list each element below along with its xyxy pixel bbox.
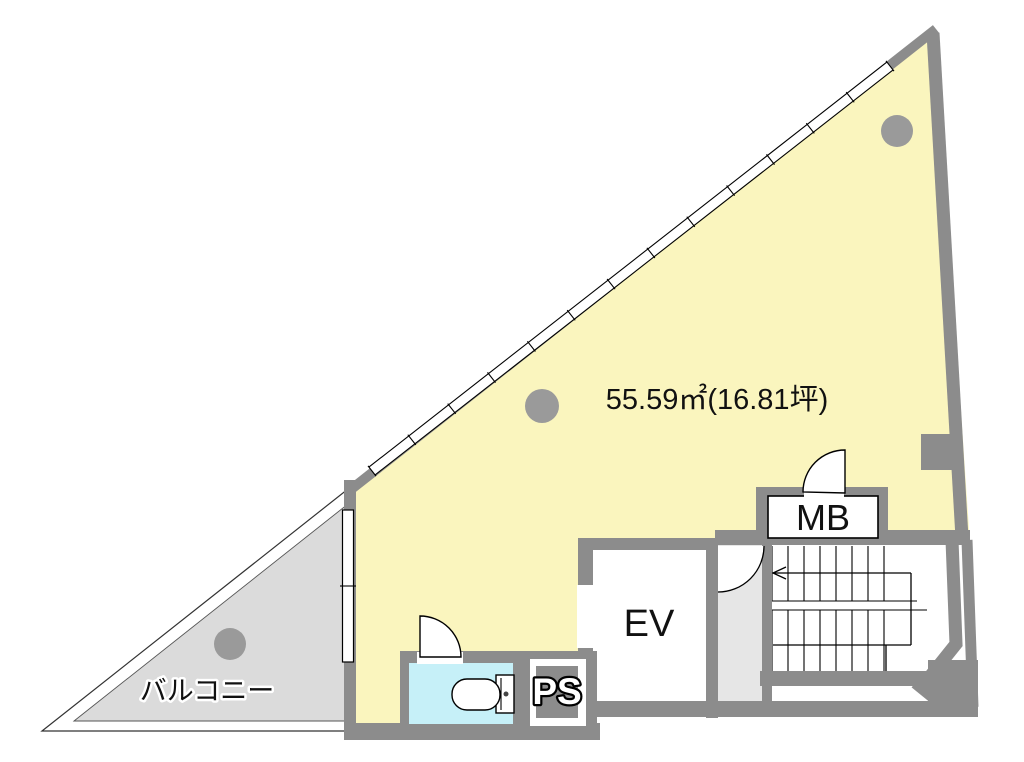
mailbox-label: MB xyxy=(796,497,850,538)
area-label: 55.59㎡(16.81坪) xyxy=(606,383,828,416)
balcony-label: バルコニー xyxy=(140,676,274,706)
elevator-label: EV xyxy=(624,603,675,645)
floor-plan: 55.59㎡(16.81坪) バルコニー EV MB PS xyxy=(0,0,1024,762)
ev-north-wall xyxy=(578,538,718,550)
east-wall-pilaster xyxy=(921,434,957,470)
column xyxy=(881,115,913,147)
toilet-room xyxy=(409,663,514,724)
stairwell-floor xyxy=(762,530,958,681)
balcony-window xyxy=(340,510,356,662)
stair-lower-landing xyxy=(772,686,934,702)
toilet-fixture-icon xyxy=(452,675,514,713)
corner-block xyxy=(928,660,978,714)
elevator-door-opening xyxy=(577,585,594,648)
column xyxy=(525,389,559,423)
column xyxy=(214,628,246,660)
pipe-space-label: PS xyxy=(532,671,581,712)
stair-south-wall xyxy=(760,671,930,686)
ev-west-wall-upper xyxy=(578,538,593,585)
south-wall-right xyxy=(578,701,978,717)
ev-east-wall xyxy=(706,538,718,718)
